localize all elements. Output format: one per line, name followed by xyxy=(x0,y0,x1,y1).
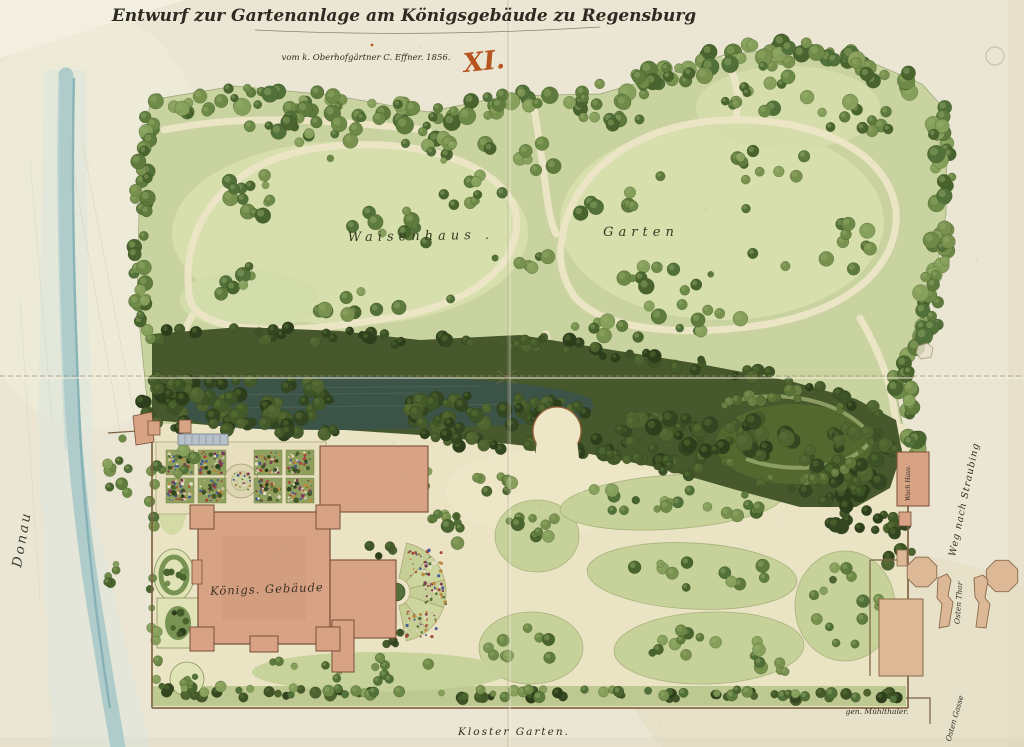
south-portal xyxy=(250,636,278,652)
plate-number: XI. xyxy=(460,45,506,79)
garden-plan-map: Entwurf zur Gartenanlage am Königsgebäud… xyxy=(0,0,1024,747)
east-building xyxy=(879,599,923,676)
paper-edge-right xyxy=(1008,0,1024,747)
enclosure-tower xyxy=(897,550,907,566)
west-risalit xyxy=(192,560,202,584)
pavilion-se xyxy=(316,627,340,651)
guard-house xyxy=(897,452,929,506)
label-garten: Garten xyxy=(603,225,679,240)
north-gate-pier-west xyxy=(148,421,160,435)
boundary-pavilion-sketch xyxy=(916,343,933,359)
round-plaza-stem xyxy=(531,440,583,492)
pavilion-sw xyxy=(190,627,214,651)
pavilion-ne xyxy=(316,505,340,529)
gate-tower-east xyxy=(986,560,1017,591)
garten-meadow xyxy=(560,124,884,320)
historic-garden-plan: Entwurf zur Gartenanlage am Königsgebäud… xyxy=(0,0,1024,747)
label-kloster-garten: Kloster Garten. xyxy=(457,726,570,738)
ink-dot xyxy=(371,44,374,47)
pavilion-nw xyxy=(190,505,214,529)
paper-edge-bottom xyxy=(0,737,1024,747)
map-title: Entwurf zur Gartenanlage am Königsgebäud… xyxy=(111,6,696,26)
courtyard-shading xyxy=(222,536,306,620)
gate-tower-west xyxy=(907,557,937,587)
label-waisenhaus: Waisenhaus . xyxy=(348,228,495,246)
label-muehlthaler: gen. Mühlthaler. xyxy=(846,707,909,716)
label-wach-haus: Wach Haus. xyxy=(905,465,912,501)
map-credit: vom k. Oberhofgärtner C. Effner. 1856. xyxy=(282,53,451,63)
north-gate-pier-east xyxy=(179,420,191,433)
guard-annex xyxy=(899,512,911,526)
north-wing xyxy=(320,446,428,512)
greenhouse xyxy=(178,434,228,445)
